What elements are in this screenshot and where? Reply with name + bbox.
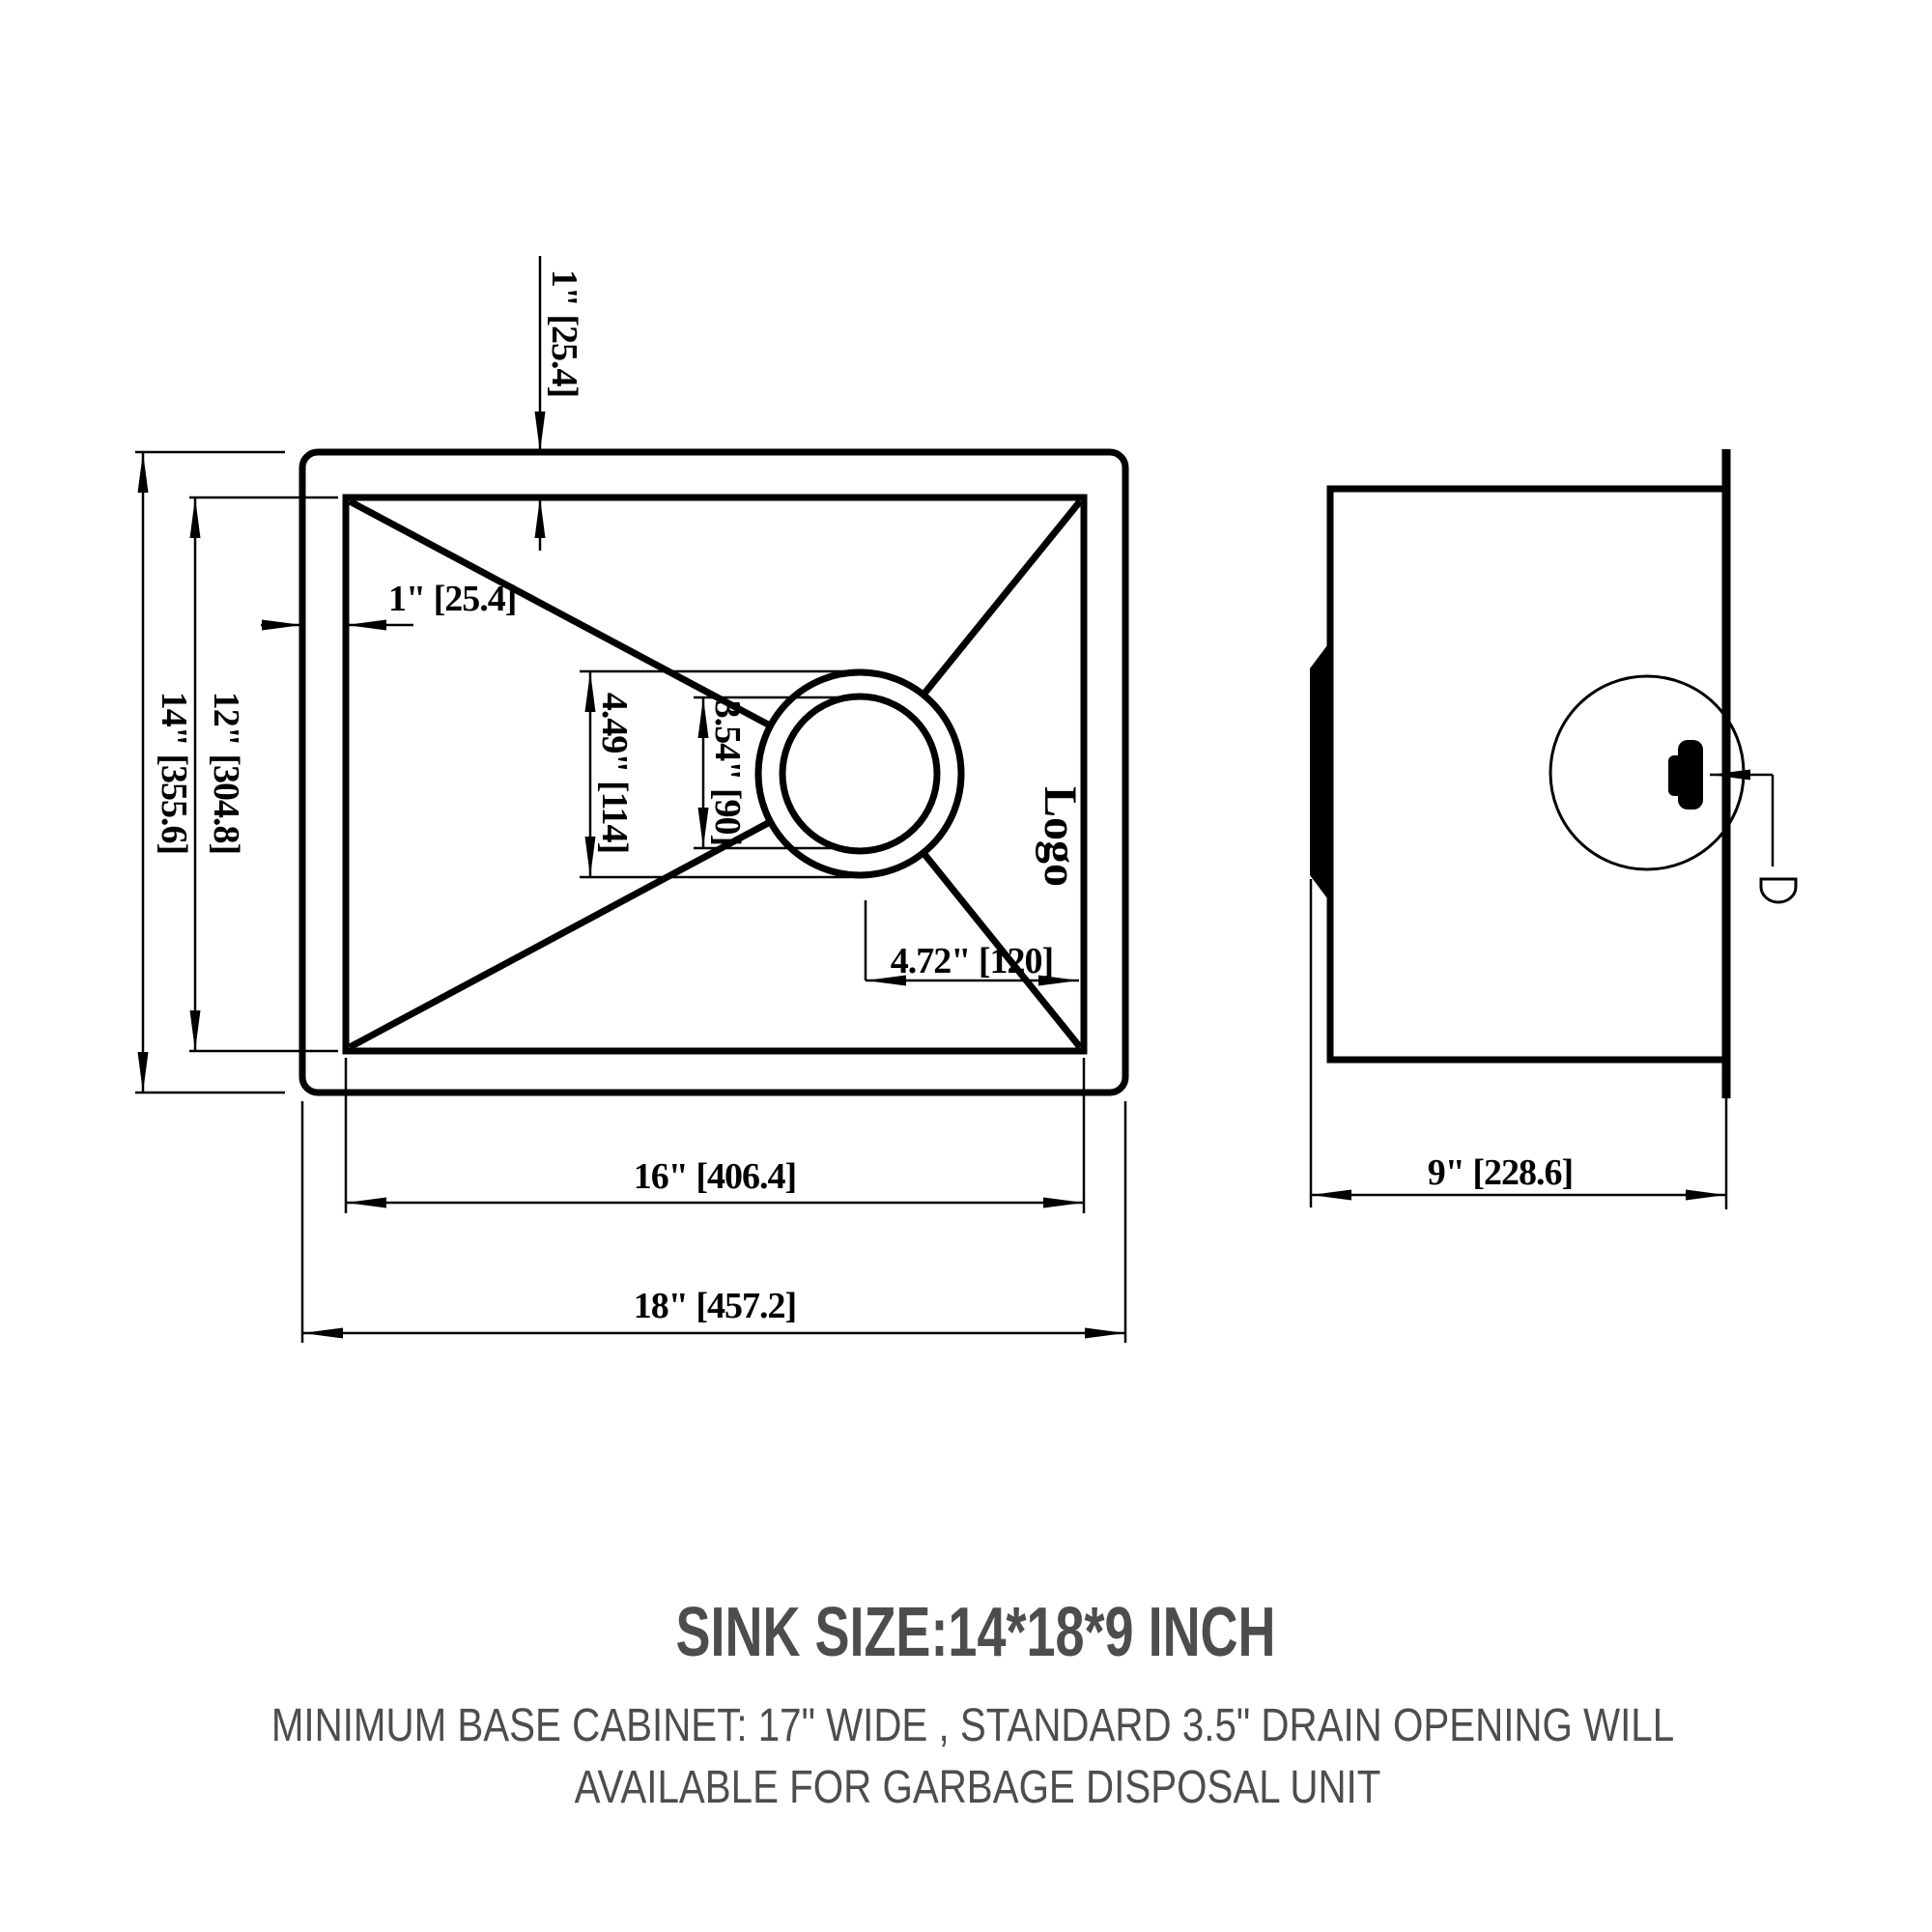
dim-label-outer-width: 18" [457.2] (634, 1286, 796, 1326)
dim-label-inner-height: 12" [304.8] (206, 692, 246, 854)
dim-label-rim-left: 1" [25.4] (388, 579, 516, 619)
dim-label-inner-width: 16" [406.4] (634, 1156, 796, 1197)
sink-size-title: SINK SIZE:14*18*9 INCH (675, 1594, 1275, 1671)
dim-label-outer-height: 14" [355.6] (154, 692, 194, 854)
dim-label-drain-outer: 4.49" [114] (594, 693, 635, 853)
dim-label-rim-top: 1" [25.4] (544, 270, 584, 397)
drain-fitting-flange (1668, 755, 1684, 796)
sink-dimension-drawing: Logo 14" [355.6] 12" [304.8] 1" [25.4] 1… (0, 0, 1932, 1932)
dim-label-drain-offset: 4.72" [120] (891, 941, 1053, 981)
logo-text: Logo (1035, 786, 1086, 887)
mounting-clip (1310, 641, 1330, 902)
dim-label-depth: 9" [228.6] (1428, 1152, 1573, 1193)
note-line-1: MINIMUM BASE CABINET: 17" WIDE , STANDAR… (271, 1700, 1674, 1751)
note-line-2: AVAILABLE FOR GARBAGE DISPOSAL UNIT (575, 1762, 1381, 1813)
dim-label-drain-inner: 3.54" [90] (707, 700, 748, 845)
sink-spec-sheet: Logo 14" [355.6] 12" [304.8] 1" [25.4] 1… (0, 0, 1932, 1932)
